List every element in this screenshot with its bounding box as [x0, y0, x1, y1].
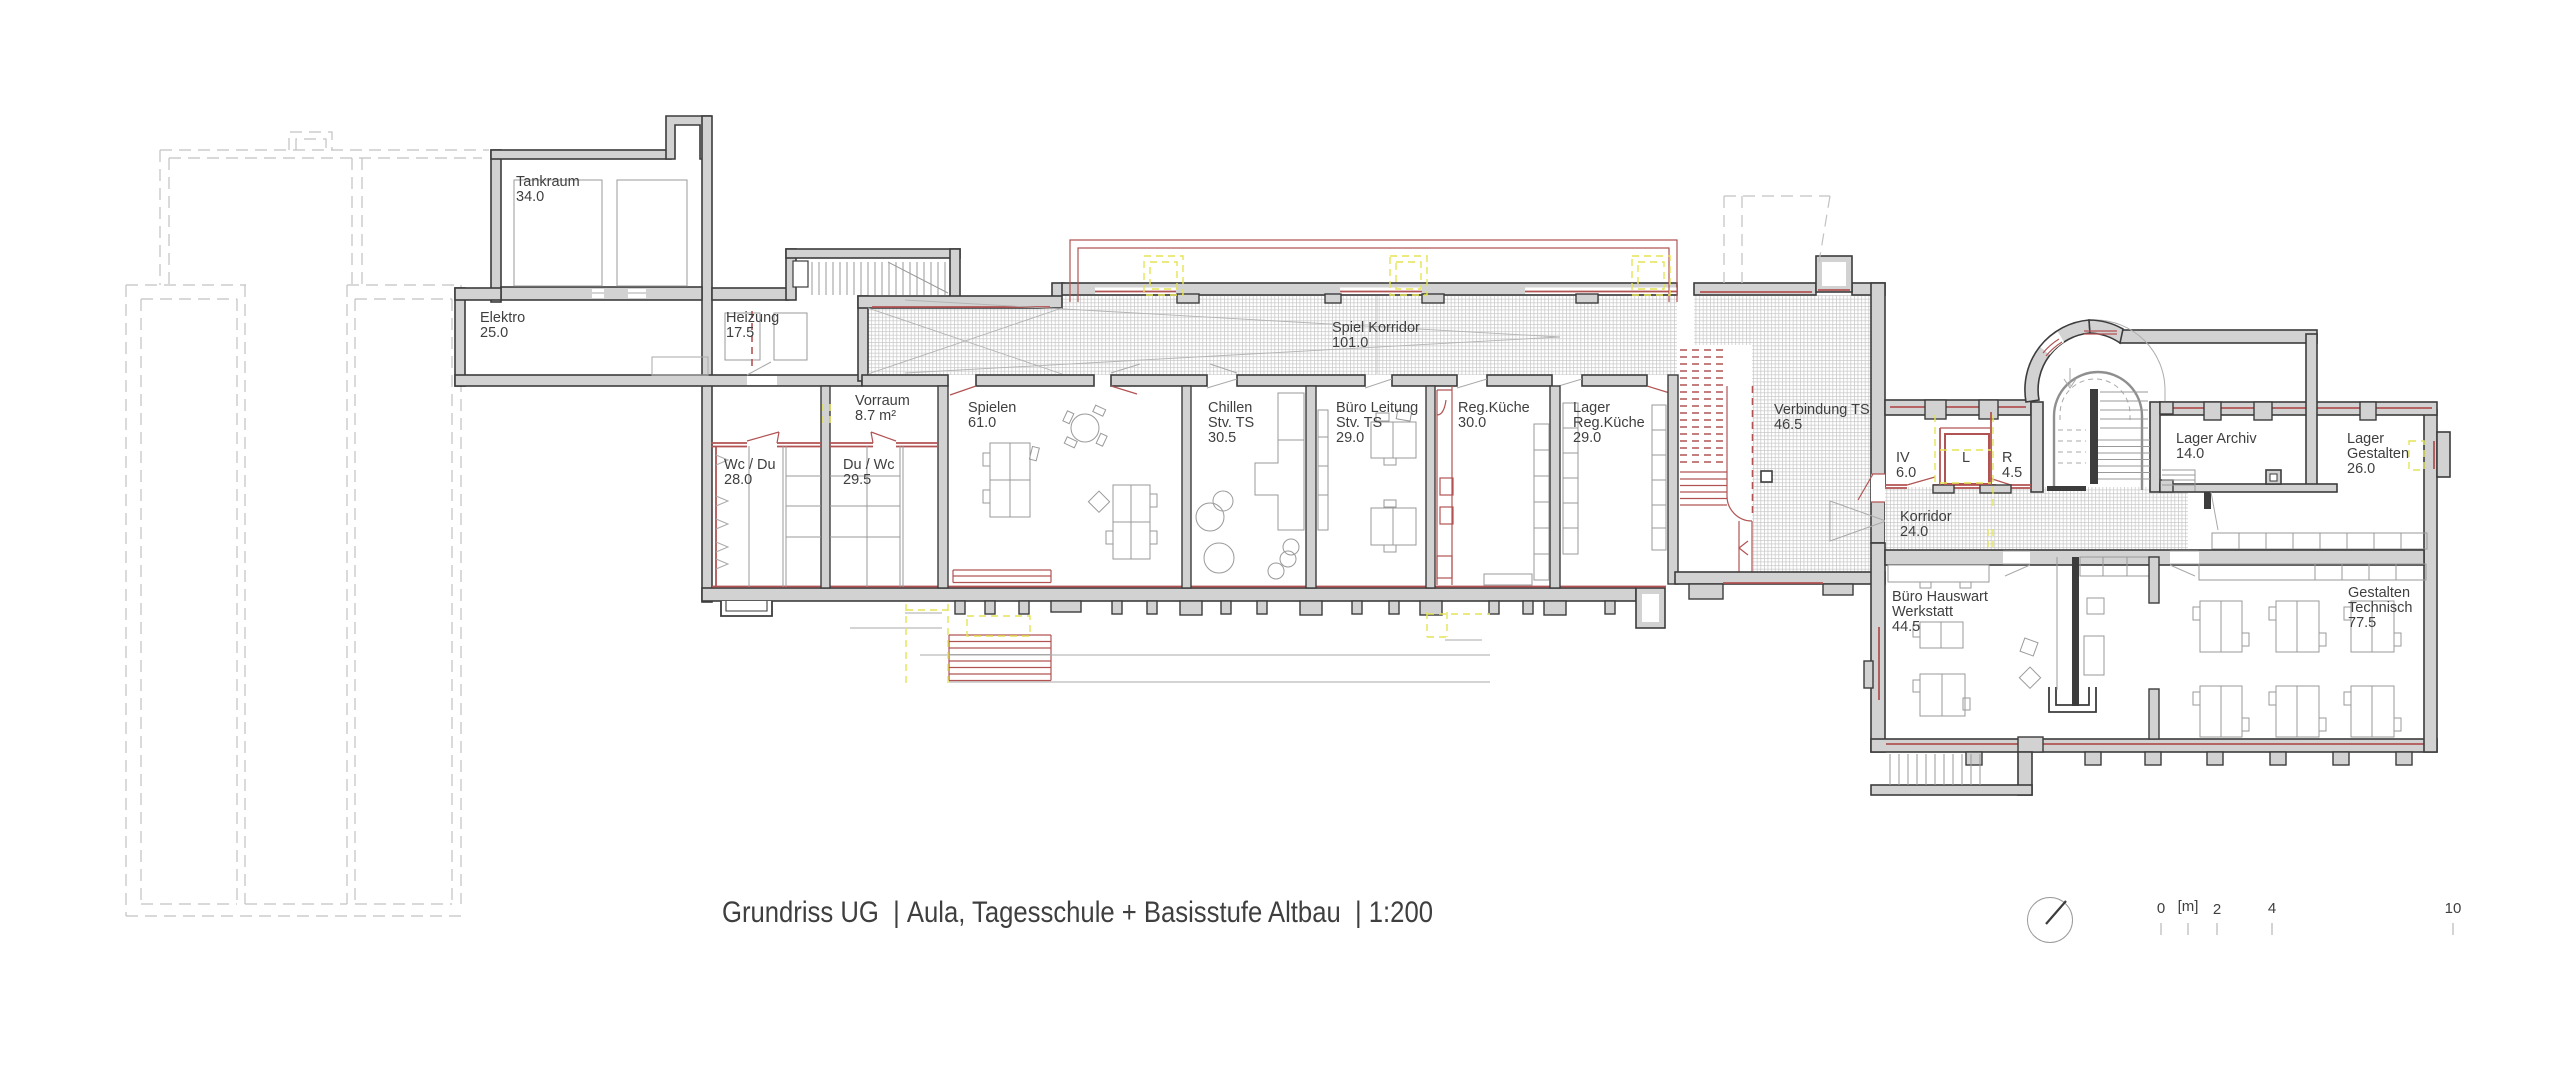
svg-text:0: 0 — [2157, 900, 2165, 917]
svg-text:Grundriss UG | Aula, Tagessch: Grundriss UG | Aula, Tagesschule + Basis… — [722, 896, 1433, 929]
svg-text:[m]: [m] — [2178, 898, 2199, 915]
svg-text:2: 2 — [2213, 901, 2221, 918]
svg-text:10: 10 — [2445, 900, 2462, 917]
svg-text:4: 4 — [2268, 900, 2276, 917]
svg-text:L: L — [1962, 450, 1970, 466]
